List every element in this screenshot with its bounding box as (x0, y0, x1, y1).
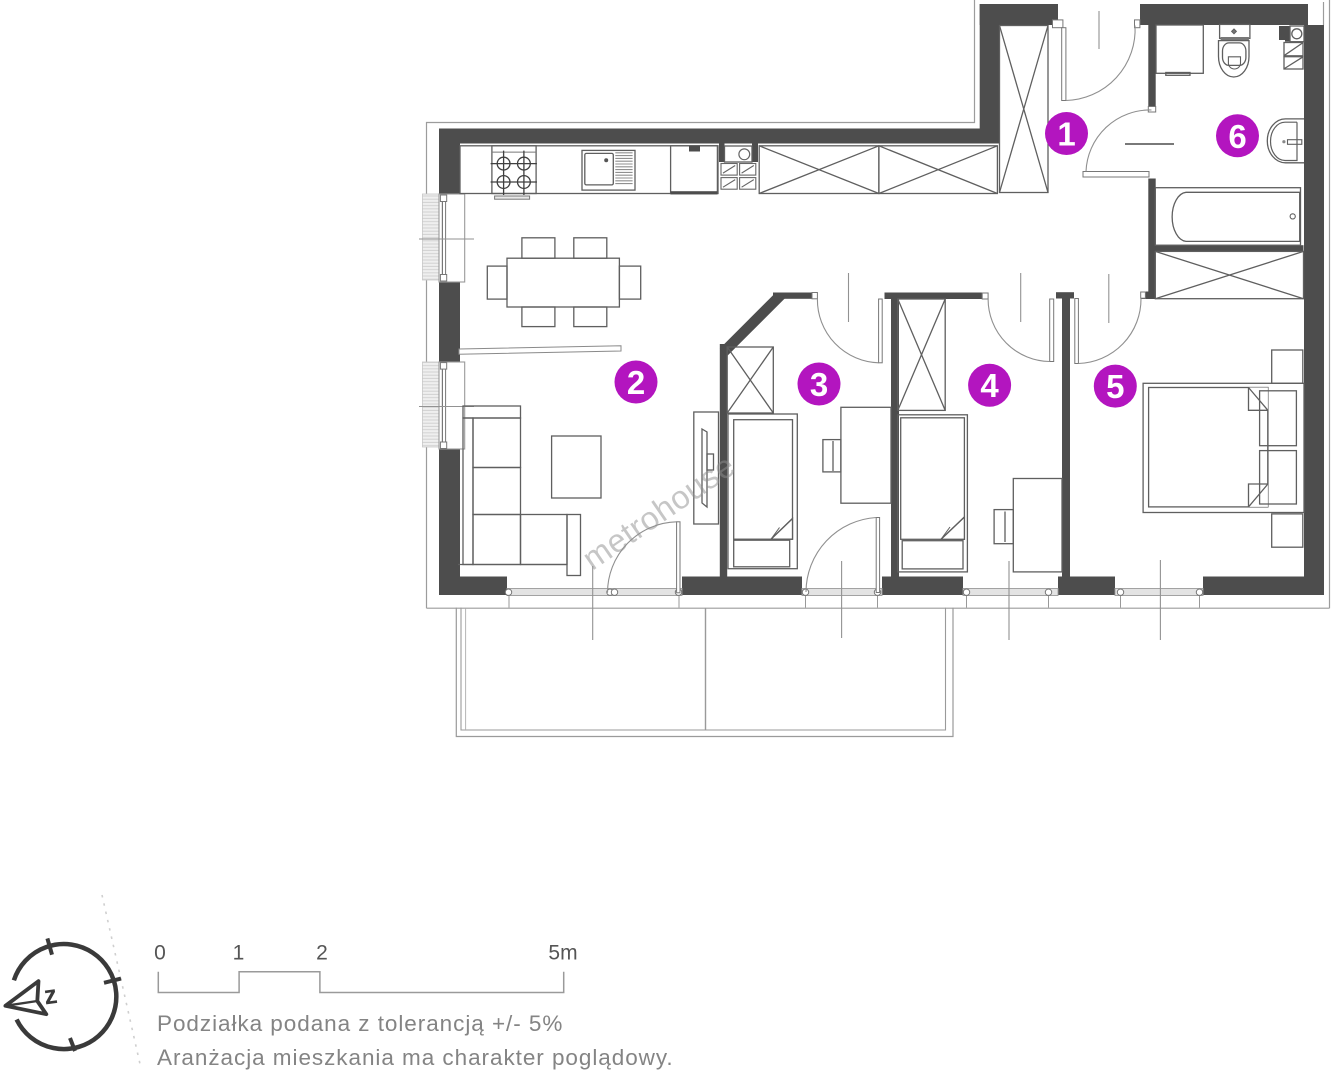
svg-text:2: 2 (627, 364, 645, 401)
svg-text:0: 0 (154, 942, 166, 965)
svg-text:Aranżacja mieszkania ma charak: Aranżacja mieszkania ma charakter pogląd… (157, 1045, 674, 1070)
svg-text:2: 2 (316, 942, 328, 965)
svg-text:6: 6 (1228, 118, 1246, 155)
svg-text:4: 4 (980, 367, 999, 404)
svg-text:3: 3 (810, 366, 828, 403)
svg-text:5m: 5m (548, 942, 577, 965)
svg-text:5: 5 (1106, 368, 1124, 405)
svg-text:1: 1 (1057, 116, 1075, 153)
svg-text:Podziałka podana z tolerancją: Podziałka podana z tolerancją +/- 5% (157, 1011, 563, 1036)
svg-text:1: 1 (233, 942, 245, 965)
